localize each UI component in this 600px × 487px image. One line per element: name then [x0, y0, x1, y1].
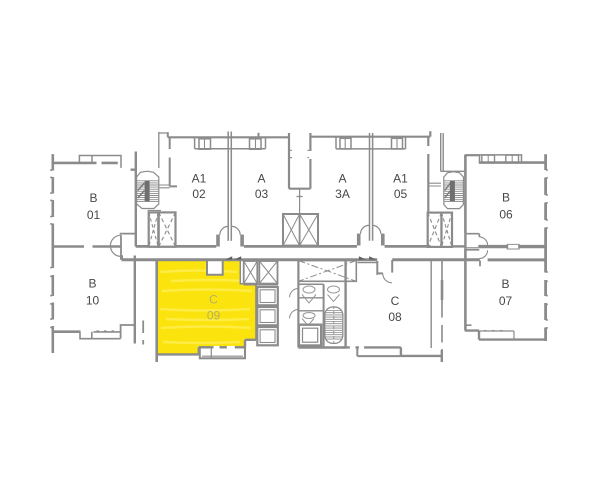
svg-text:3A: 3A: [335, 187, 350, 201]
svg-text:B: B: [502, 191, 510, 205]
svg-text:C: C: [209, 293, 218, 307]
svg-text:C: C: [391, 294, 400, 308]
svg-text:A1: A1: [393, 171, 408, 185]
svg-text:B: B: [88, 277, 96, 291]
svg-text:A1: A1: [192, 171, 207, 185]
svg-text:10: 10: [86, 293, 100, 307]
svg-text:03: 03: [255, 187, 269, 201]
svg-text:B: B: [89, 191, 97, 205]
svg-text:B: B: [501, 277, 509, 291]
svg-text:05: 05: [394, 187, 408, 201]
svg-text:01: 01: [87, 208, 101, 222]
svg-text:02: 02: [192, 187, 206, 201]
svg-text:08: 08: [388, 310, 402, 324]
svg-text:A: A: [338, 171, 346, 185]
svg-text:A: A: [257, 171, 265, 185]
svg-text:07: 07: [499, 294, 513, 308]
svg-text:06: 06: [499, 207, 513, 221]
svg-text:09: 09: [207, 309, 221, 323]
